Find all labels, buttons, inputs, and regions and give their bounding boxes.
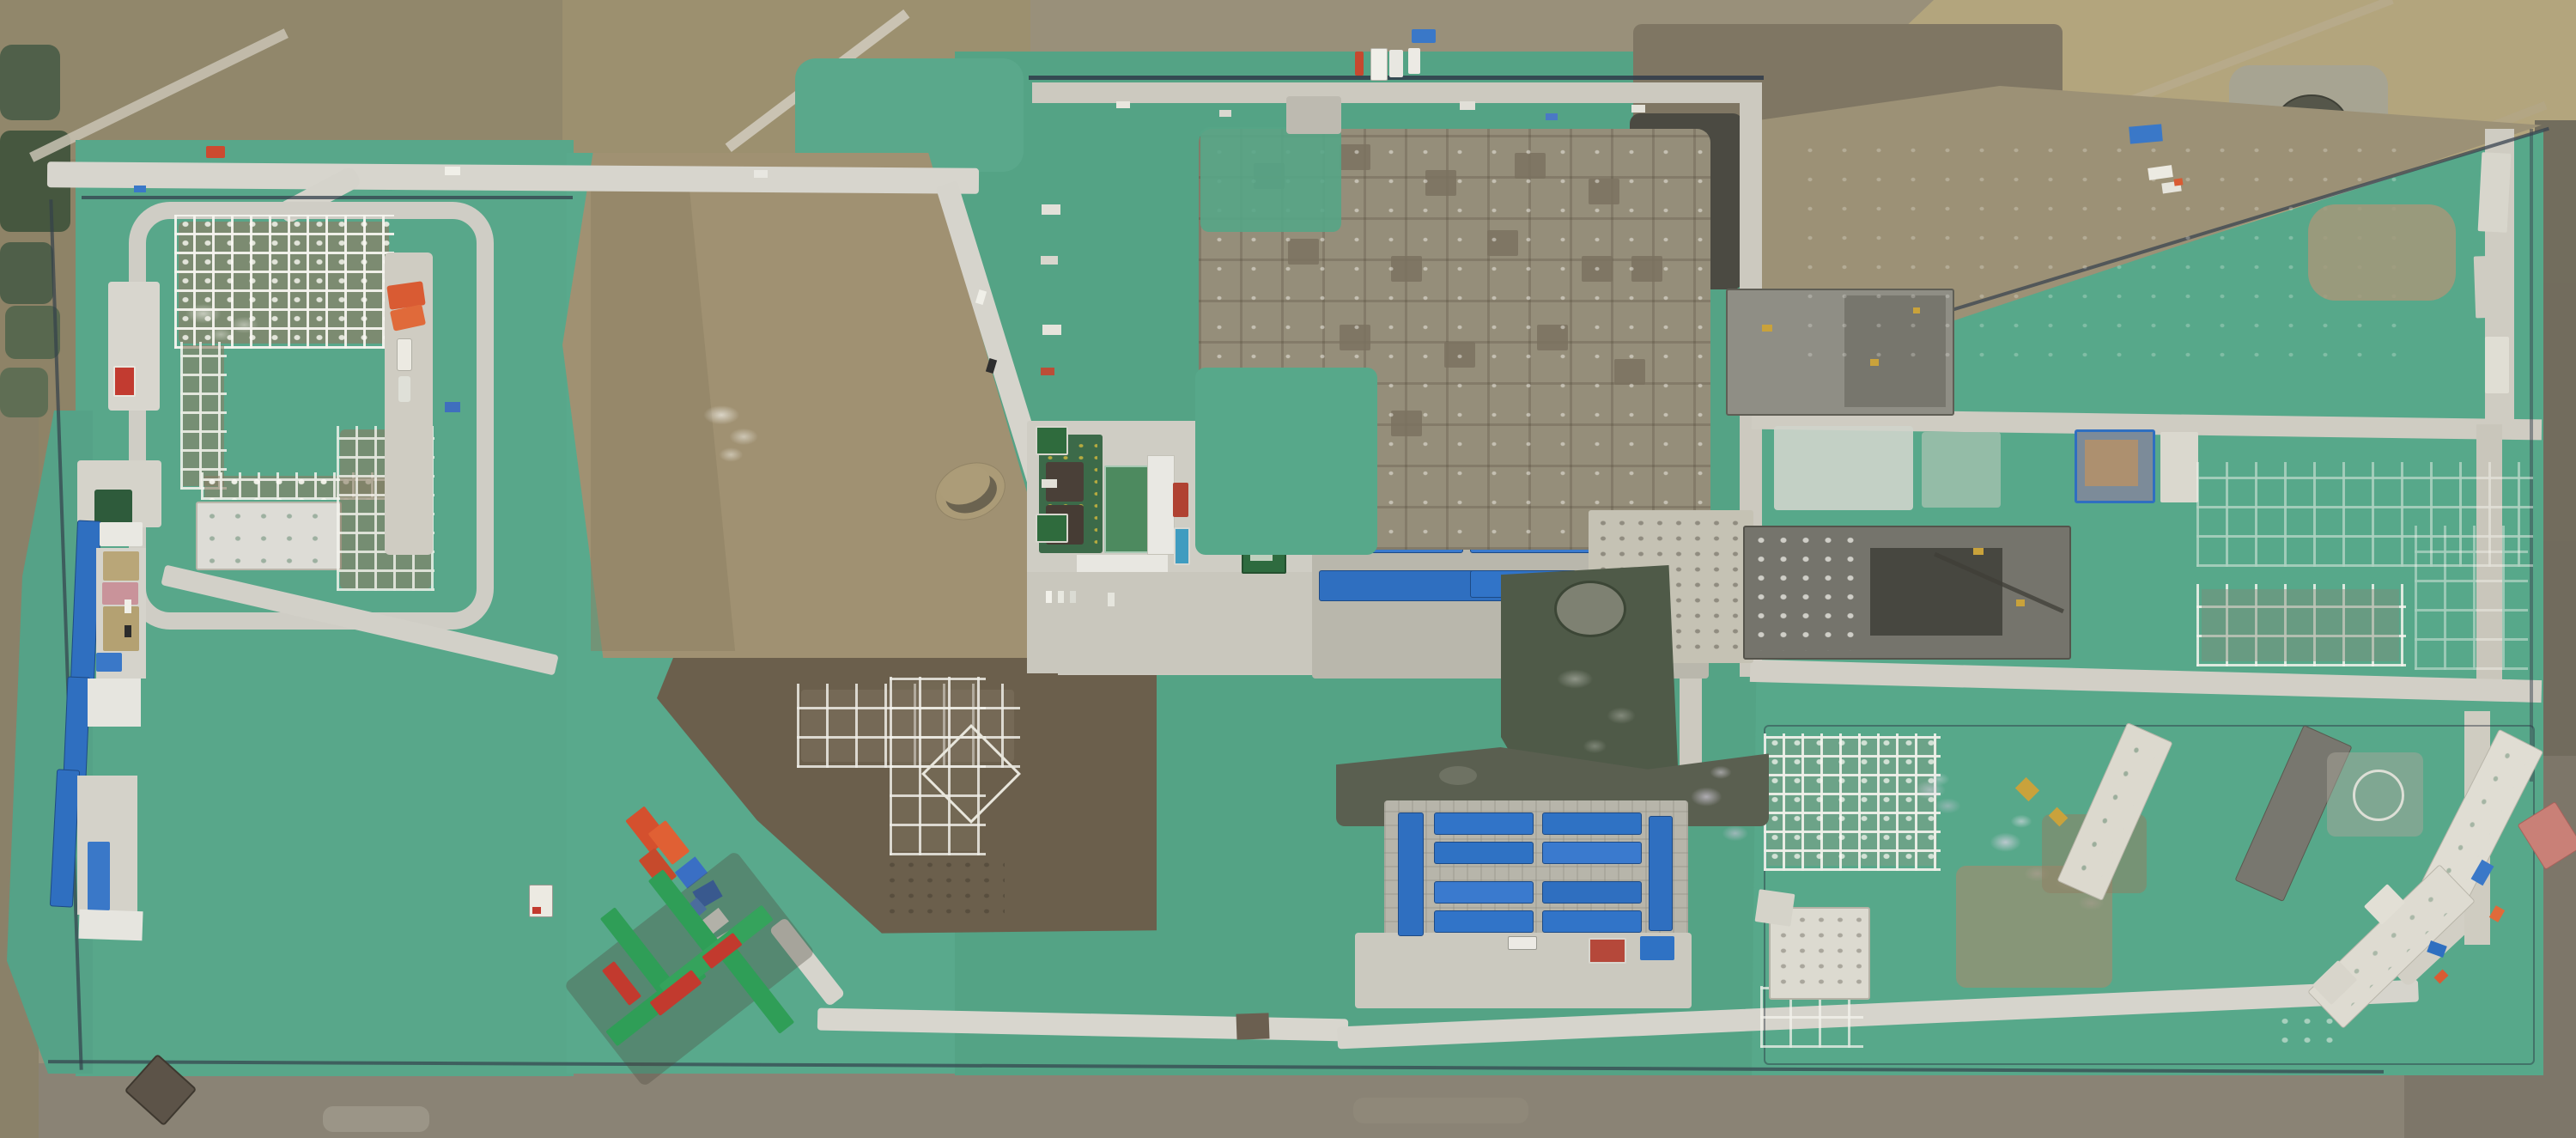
campus-court-red: [1173, 483, 1188, 517]
bottomcamp-debris-east: [1685, 754, 1757, 876]
stack-white-1: [2160, 432, 2198, 502]
cmp-top-plaza: [1286, 96, 1341, 134]
pond-west-4: [5, 306, 60, 359]
tent-orange-ne: [2173, 178, 2183, 186]
pond-west-5: [0, 368, 48, 417]
westcamp-blue-small-1: [96, 653, 122, 672]
cmp-top-speck-4: [1546, 113, 1558, 120]
campus-basketball-court: [1104, 466, 1151, 553]
westcamp-cabins-mid: [88, 679, 141, 727]
truck-road-north-2: [754, 170, 768, 178]
bottomcamp-dorm-west: [1398, 812, 1424, 936]
brc-slab-small: [1755, 889, 1795, 926]
brc-marks-south: [2274, 1012, 2346, 1048]
pit-green-nw: [1200, 127, 1341, 232]
scaffold-interior: [2085, 440, 2138, 486]
westcamp-dorm-b: [63, 676, 90, 780]
bottomcamp-pond: [1439, 766, 1477, 785]
bottomcamp-truck: [1508, 936, 1537, 950]
white-patch-south-1: [323, 1106, 429, 1132]
brc-helipad-circle: [2353, 770, 2404, 821]
campus-pool: [1174, 527, 1190, 565]
westcamp-court-tan-2: [103, 606, 139, 651]
crane-yellow-e2: [2016, 599, 2025, 606]
wcmp-blue-bit: [445, 402, 460, 412]
stack-white-4: [2485, 337, 2509, 393]
aerial-orthophoto-construction-site: [0, 0, 2576, 1138]
campus-car-1: [1046, 591, 1052, 603]
bottomcamp-red-square: [1589, 938, 1626, 964]
marsh-pond: [1554, 581, 1626, 637]
wcmp-blue-dot: [134, 186, 146, 192]
cmp-object-6: [1042, 479, 1057, 488]
campus-plaza-south: [1027, 572, 1312, 673]
cross-foundation-piles: [883, 857, 1005, 919]
foundation-mat-east-core: [1870, 548, 2002, 636]
white-patch-south-2: [1353, 1098, 1528, 1123]
bottomcamp-dorm-b4: [1542, 910, 1642, 933]
road-gate-dark: [1236, 1013, 1269, 1039]
westcamp-court-darkgreen: [94, 490, 132, 524]
truck-red: [1355, 52, 1364, 76]
wcmp-truck-2: [398, 376, 410, 402]
campus-goal-south: [1250, 555, 1273, 561]
cmp-top-speck-1: [1116, 101, 1130, 108]
gate-house-1: [1036, 426, 1068, 455]
wcmp-gate-red: [113, 366, 136, 397]
pond-northwest-1: [0, 45, 60, 120]
westcamp-car-1: [125, 599, 131, 613]
campus-car-4: [1108, 593, 1115, 606]
bottomcamp-dorm-a2: [1434, 842, 1534, 864]
westcamp-court-pink: [102, 582, 138, 605]
cmp-top-speck-5: [1631, 105, 1645, 113]
pit-green-tongue-sw: [1195, 368, 1377, 555]
cmp-object-4: [1041, 368, 1054, 375]
westcamp-cabins-north: [100, 522, 143, 546]
truck-white-2: [1389, 50, 1403, 77]
stack-white-3: [2474, 255, 2501, 318]
cmp-object-1: [1042, 204, 1060, 215]
marsh-algae-streaks: [1535, 642, 1668, 764]
bottomcamp-dorm-east: [1649, 816, 1673, 931]
campus-cabins-west: [1147, 455, 1175, 555]
brc-debris-purple-3: [1917, 771, 1961, 825]
pile-marks-far-east: [2415, 526, 2528, 670]
shed-blue-north: [1412, 29, 1436, 43]
truck-white-1: [1370, 48, 1388, 81]
bottomcamp-dorm-a4: [1434, 910, 1534, 933]
wcmp-slab-specks: [199, 505, 335, 563]
cmp-object-3: [1042, 325, 1061, 335]
foundation-mat-east-piles: [1750, 531, 1863, 651]
wcmp-truck-1: [397, 338, 412, 371]
crane-yellow-e1: [1973, 548, 1984, 555]
gridlayout-soil-east: [2202, 589, 2399, 661]
westcamp-blue-small-2: [88, 842, 110, 910]
tan-blob-e: [2308, 204, 2456, 301]
bottomcamp-blue-small: [1640, 936, 1674, 960]
wcmp-shed-red: [206, 146, 225, 158]
truck-white-3: [1408, 48, 1420, 74]
brc-grid-a-caps: [1764, 733, 1941, 871]
crane-cab-yellow-1: [1762, 325, 1772, 332]
gate-house-2: [1036, 514, 1068, 543]
bottomcamp-dorm-b1: [1542, 812, 1642, 835]
pond-west-3: [0, 242, 53, 304]
fence-east: [2530, 129, 2533, 782]
cmp-top-speck-3: [1460, 101, 1475, 110]
westcamp-car-2: [125, 625, 131, 637]
tarp-blue-ne: [2129, 124, 2163, 143]
campus-car-3: [1070, 591, 1076, 603]
wcmp-pallets: [168, 302, 285, 340]
sign-red-dot: [532, 907, 541, 914]
cmp-object-2: [1041, 256, 1058, 265]
cmp-top-speck-2: [1219, 110, 1231, 117]
bottomcamp-dorm-b3: [1542, 881, 1642, 904]
campus-car-2: [1058, 591, 1064, 603]
bottomcamp-dorm-b2: [1542, 842, 1642, 864]
truck-road-north-1: [445, 167, 460, 175]
bottomcamp-dorm-a1: [1434, 812, 1534, 835]
wcmp-gridbeams-westcol: [180, 342, 227, 490]
bottomcamp-dorm-a3: [1434, 881, 1534, 904]
fallow-white-patch: [702, 393, 766, 466]
laydown-green: [1922, 432, 2001, 508]
stack-white-2: [2478, 152, 2512, 233]
westcamp-cabins-south: [78, 910, 143, 941]
westcamp-court-tan-1: [103, 551, 139, 581]
laydown-white: [1774, 426, 1913, 510]
road-compound-north: [1032, 82, 1760, 103]
bottomcamp-lanes: [1384, 800, 1688, 950]
fence-west-top: [82, 196, 573, 199]
